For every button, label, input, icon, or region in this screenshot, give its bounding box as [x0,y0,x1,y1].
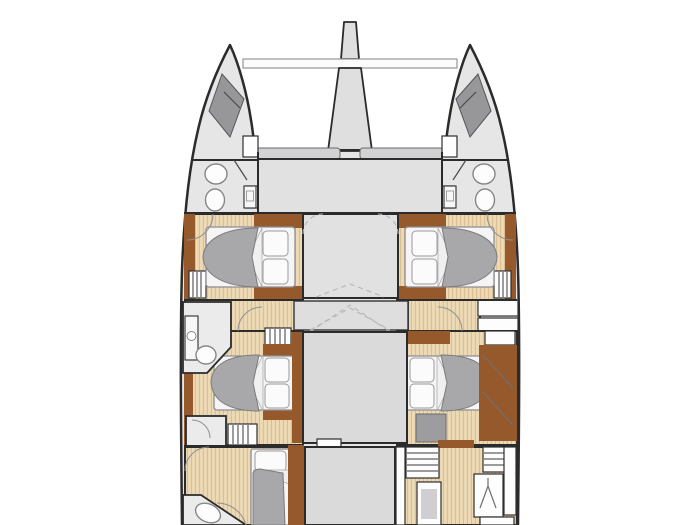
sink-bowl [187,332,196,341]
starboard-corridor-floor [408,300,480,331]
pillow [410,384,434,408]
forward-crossbeam [243,59,457,68]
bridgedeck-trim-port [292,332,303,443]
floor-plan [0,0,700,525]
fridge-interior [421,489,437,519]
bedside-cabinet-top [407,331,450,344]
foredeck-lounge [258,159,442,213]
saloon-bridgedeck [303,332,407,443]
pillow [255,451,286,471]
duvet [253,469,285,525]
counter-trim [438,440,474,448]
foredeck-seat-port [257,148,340,159]
starboard-step-upper [478,300,518,316]
side-cabinet [396,447,405,525]
pillow [265,384,289,408]
bowsprit-tip [341,22,359,59]
louver-cabinet [406,447,439,478]
port-forward-cabin [184,214,303,300]
port-shower [186,416,226,447]
forward-bridgedeck [303,214,398,298]
shelf-unit [485,331,515,345]
pillow [410,358,434,382]
foredeck-seat-starboard [360,148,443,159]
starboard-step-lower [478,318,518,331]
aft-locker [480,517,514,525]
aft-bridgedeck [305,447,395,525]
toilet [196,346,216,364]
catamaran-plan-svg [0,0,700,525]
pillow [265,358,289,382]
starboard-forward-cabin [397,214,516,300]
bridgedeck-trim-port-aft [288,445,304,525]
seat-bench [416,414,446,442]
tall-cabinet [504,447,516,515]
